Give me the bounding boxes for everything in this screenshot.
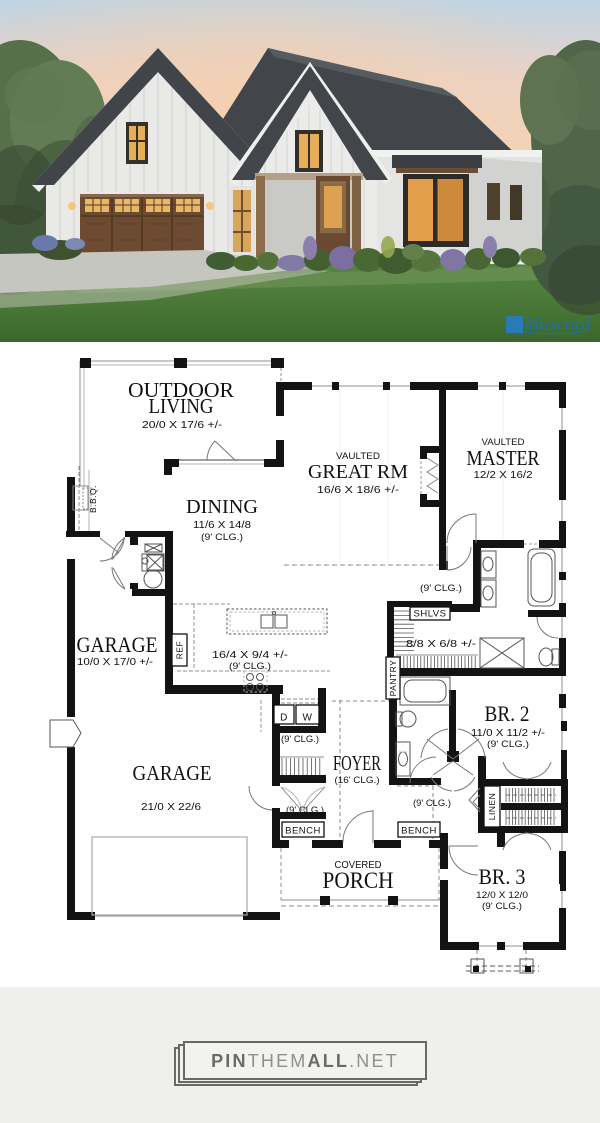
svg-text:12/0 X 12/0: 12/0 X 12/0 bbox=[476, 890, 528, 901]
svg-text:MASTER: MASTER bbox=[467, 446, 540, 470]
svg-text:BR. 2: BR. 2 bbox=[485, 701, 530, 726]
svg-text:COVERED: COVERED bbox=[335, 859, 382, 871]
svg-text:(9' CLG.): (9' CLG.) bbox=[413, 798, 451, 808]
svg-text:W: W bbox=[303, 713, 313, 724]
svg-text:BENCH: BENCH bbox=[401, 826, 437, 837]
svg-text:16/4 X 9/4 +/-: 16/4 X 9/4 +/- bbox=[212, 650, 288, 661]
svg-text:VAULTED: VAULTED bbox=[336, 451, 380, 462]
svg-text:GARAGE: GARAGE bbox=[77, 632, 158, 657]
svg-text:FOYER: FOYER bbox=[333, 751, 381, 775]
svg-text:GREAT RM: GREAT RM bbox=[308, 461, 408, 483]
svg-text:REF: REF bbox=[175, 641, 185, 660]
svg-text:10/0 X 17/0 +/-: 10/0 X 17/0 +/- bbox=[77, 657, 153, 668]
svg-text:ALAN MASCORD DESIGN ASSOCIATES: ALAN MASCORD DESIGN ASSOCIATES, INC bbox=[508, 335, 582, 339]
svg-text:(9' CLG.): (9' CLG.) bbox=[487, 739, 529, 750]
svg-text:DINING: DINING bbox=[186, 496, 258, 518]
svg-text:BENCH: BENCH bbox=[285, 826, 321, 837]
svg-text:(9' CLG.): (9' CLG.) bbox=[286, 805, 324, 815]
svg-text:21/0 X 22/6: 21/0 X 22/6 bbox=[141, 802, 202, 813]
svg-text:GARAGE: GARAGE bbox=[133, 761, 212, 785]
svg-text:8/8 X 6/8 +/-: 8/8 X 6/8 +/- bbox=[406, 639, 476, 650]
svg-text:11/0 X 11/2 +/-: 11/0 X 11/2 +/- bbox=[471, 728, 545, 739]
svg-text:VAULTED: VAULTED bbox=[482, 437, 525, 448]
svg-text:LINEN: LINEN bbox=[487, 793, 497, 821]
svg-text:(16' CLG.): (16' CLG.) bbox=[335, 775, 380, 786]
svg-text:SHLVS: SHLVS bbox=[414, 609, 447, 620]
svg-text:(9' CLG.): (9' CLG.) bbox=[420, 583, 462, 594]
svg-text:D: D bbox=[280, 713, 288, 724]
svg-text:(9' CLG.): (9' CLG.) bbox=[201, 532, 243, 543]
svg-text:(9' CLG.): (9' CLG.) bbox=[281, 734, 319, 744]
svg-text:20/0 X 17/6 +/-: 20/0 X 17/6 +/- bbox=[142, 420, 222, 431]
svg-text:PORCH: PORCH bbox=[323, 868, 394, 893]
svg-text:16/6 X 18/6 +/-: 16/6 X 18/6 +/- bbox=[317, 485, 399, 496]
svg-text:BR. 3: BR. 3 bbox=[479, 864, 526, 889]
svg-text:(9' CLG.): (9' CLG.) bbox=[229, 661, 271, 672]
svg-text:PANTRY: PANTRY bbox=[388, 660, 398, 697]
svg-text:12/2 X 16/2: 12/2 X 16/2 bbox=[474, 470, 534, 481]
svg-text:11/6 X 14/8: 11/6 X 14/8 bbox=[193, 520, 251, 531]
svg-text:B.B.Q.: B.B.Q. bbox=[88, 485, 98, 513]
svg-text:(9' CLG.): (9' CLG.) bbox=[482, 901, 522, 911]
svg-text:LIVING: LIVING bbox=[149, 394, 214, 418]
